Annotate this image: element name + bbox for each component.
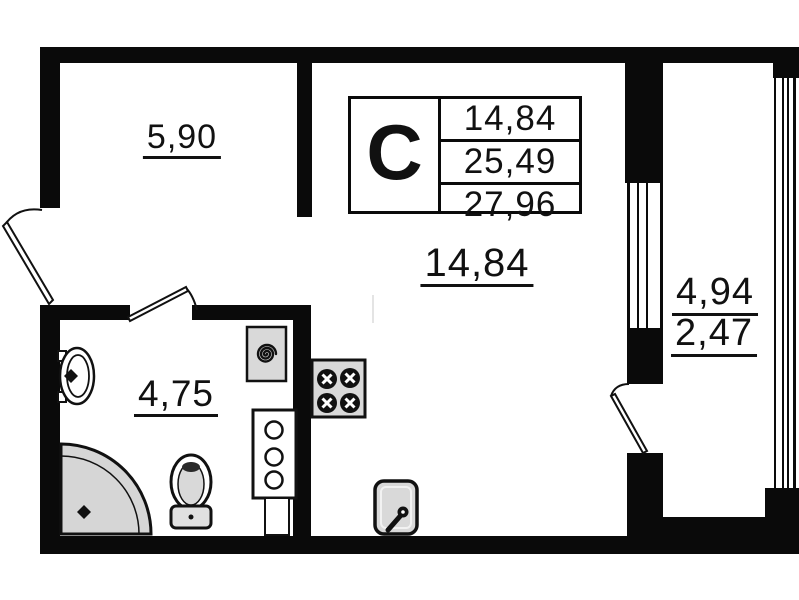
stove-icon xyxy=(306,357,368,421)
wall-left-upper xyxy=(40,47,60,208)
pier-balcony-top xyxy=(625,63,663,183)
wall-bathroom-top-left xyxy=(60,305,130,320)
title-block-value-total: 27,96 xyxy=(441,182,579,225)
bathroom-door xyxy=(128,287,197,321)
balcony-area-full-label: 4,94 xyxy=(672,271,758,316)
title-block: С 14,84 25,49 27,96 xyxy=(348,96,582,214)
floor-plan: С 14,84 25,49 27,96 5,90 14,84 4,75 4,94… xyxy=(0,0,799,600)
wall-corner-bottom-right xyxy=(765,488,799,554)
washing-machine-icon xyxy=(245,325,288,383)
balcony-door xyxy=(611,384,647,453)
entrance-door xyxy=(3,209,53,304)
title-block-values: 14,84 25,49 27,96 xyxy=(441,99,579,211)
apartment-type-letter: С xyxy=(351,99,441,211)
print-artifact xyxy=(372,295,374,323)
toilet-icon xyxy=(168,453,214,531)
balcony-area-reduced-label: 2,47 xyxy=(671,312,757,357)
living-room-area-label: 14,84 xyxy=(420,241,533,287)
wall-top xyxy=(40,47,799,63)
balcony-glazing xyxy=(774,78,796,488)
shower-tray-icon xyxy=(58,441,156,536)
kitchen-sink-icon xyxy=(372,478,420,538)
pier-balcony-bottom xyxy=(627,453,663,536)
pier-balcony-mid xyxy=(627,328,663,384)
wall-corner-top-right xyxy=(773,47,799,78)
title-block-value-apartment: 25,49 xyxy=(441,139,579,182)
wall-left-lower xyxy=(40,305,60,554)
window-room-balcony xyxy=(627,183,663,328)
utility-shaft-icon xyxy=(251,408,298,500)
title-block-value-living: 14,84 xyxy=(441,99,579,139)
bathroom-area-label: 4,75 xyxy=(134,373,218,417)
hallway-area-label: 5,90 xyxy=(143,118,221,159)
utility-shaft-niche xyxy=(264,497,290,536)
wall-partition-hallway xyxy=(297,63,312,217)
washbasin-icon xyxy=(56,344,98,408)
wall-bottom-main xyxy=(40,536,665,554)
